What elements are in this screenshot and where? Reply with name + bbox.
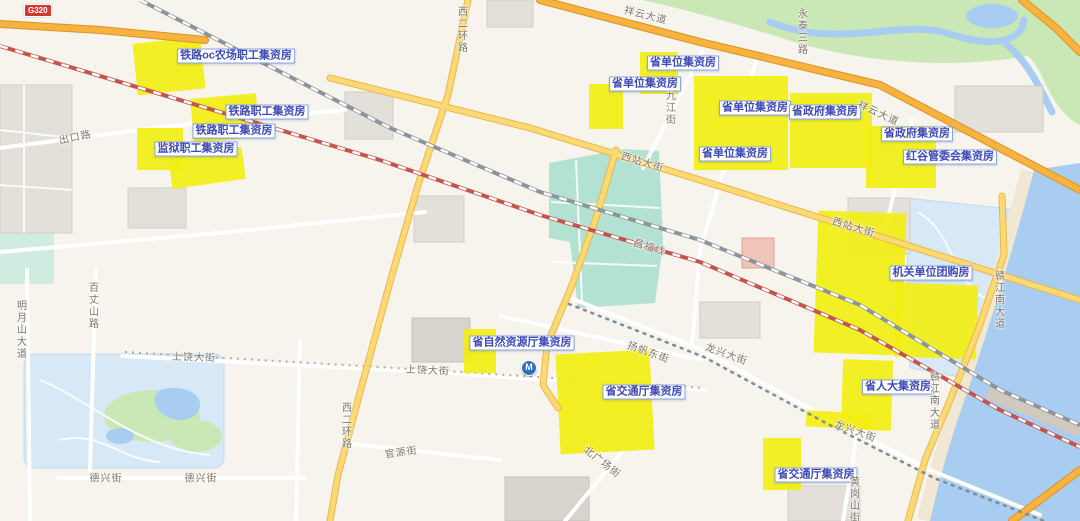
parcel-label[interactable]: 省政府集资房	[881, 127, 953, 142]
road-label: 官源街	[384, 441, 419, 460]
road-label: 祥云大道	[856, 96, 902, 128]
metro-station-icon[interactable]: M	[521, 360, 537, 376]
parcel-label[interactable]: 省交通厅集资房	[603, 385, 686, 400]
road-label: 西站大街	[831, 212, 877, 239]
road-label: 永泰三路	[794, 8, 809, 56]
road-label: 西二环路	[338, 402, 353, 450]
parcel-label[interactable]: 机关单位团购房	[890, 266, 973, 281]
road-label: 黄岗山街	[846, 476, 861, 521]
parcel-label[interactable]: 省人大集资房	[862, 380, 934, 395]
parcel-label[interactable]: 省单位集资房	[719, 101, 791, 116]
parcel-label[interactable]: 铁路职工集资房	[226, 105, 309, 120]
road-label: 龙兴大街	[704, 338, 750, 367]
road-label: 西站大街	[620, 147, 666, 174]
road-label: 赣江南大道	[926, 371, 941, 431]
road-label: 上饶大街	[406, 360, 451, 377]
parcel-label[interactable]: 铁路职工集资房	[193, 124, 276, 139]
map-labels-layer: 铁路oc农场职工集资房铁路职工集资房铁路职工集资房监狱职工集资房省单位集资房省单…	[0, 0, 1080, 521]
road-label: 扬帆东街	[626, 336, 672, 365]
road-label: 德兴街	[185, 470, 218, 485]
parcel-label[interactable]: 省单位集资房	[699, 147, 771, 162]
parcel-label[interactable]: 红谷管委会集资房	[903, 150, 997, 165]
highway-badge-g320: G320	[24, 4, 52, 17]
road-label: 百丈山路	[85, 282, 100, 330]
parcel-label[interactable]: 省自然资源厅集资房	[470, 336, 575, 351]
road-label: 上饶大街	[172, 348, 216, 365]
road-label: 祥云大道	[623, 1, 669, 26]
parcel-label[interactable]: 监狱职工集资房	[155, 142, 238, 157]
road-label: 德兴街	[90, 470, 123, 485]
road-label: 赣江南大道	[991, 270, 1006, 330]
parcel-label[interactable]: 省政府集资房	[789, 105, 861, 120]
road-label: 九江街	[662, 90, 677, 126]
road-label: 西二环路	[454, 6, 469, 54]
parcel-label[interactable]: 省单位集资房	[647, 56, 719, 71]
road-label: 龙兴大街	[833, 415, 879, 444]
road-label: 出口路	[57, 125, 92, 147]
parcel-label[interactable]: 铁路oc农场职工集资房	[177, 49, 295, 64]
road-label: 明月山大道	[13, 300, 28, 360]
road-label: 北广场街	[581, 442, 625, 481]
road-label: 昌福线	[632, 234, 668, 258]
map-viewport[interactable]: 铁路oc农场职工集资房铁路职工集资房铁路职工集资房监狱职工集资房省单位集资房省单…	[0, 0, 1080, 521]
